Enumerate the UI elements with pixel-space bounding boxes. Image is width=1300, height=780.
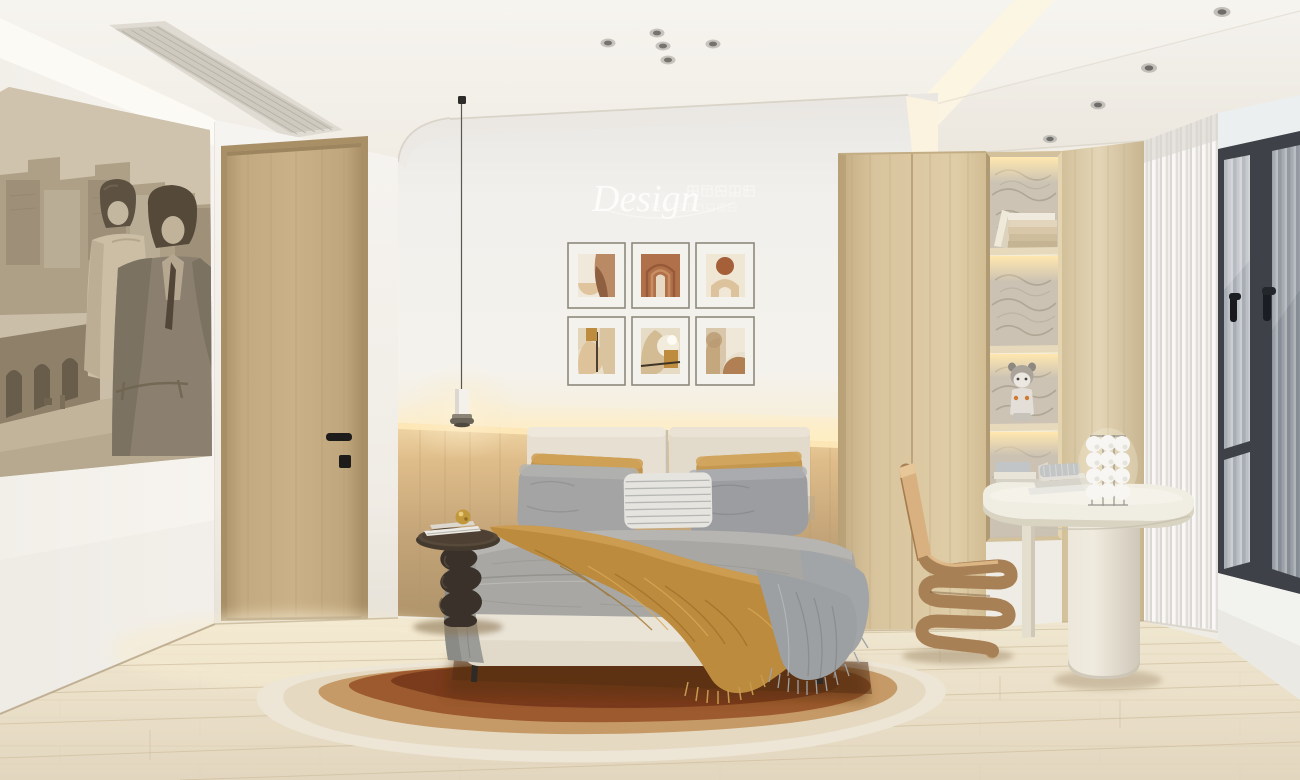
svg-text:Design: Design: [591, 178, 700, 220]
